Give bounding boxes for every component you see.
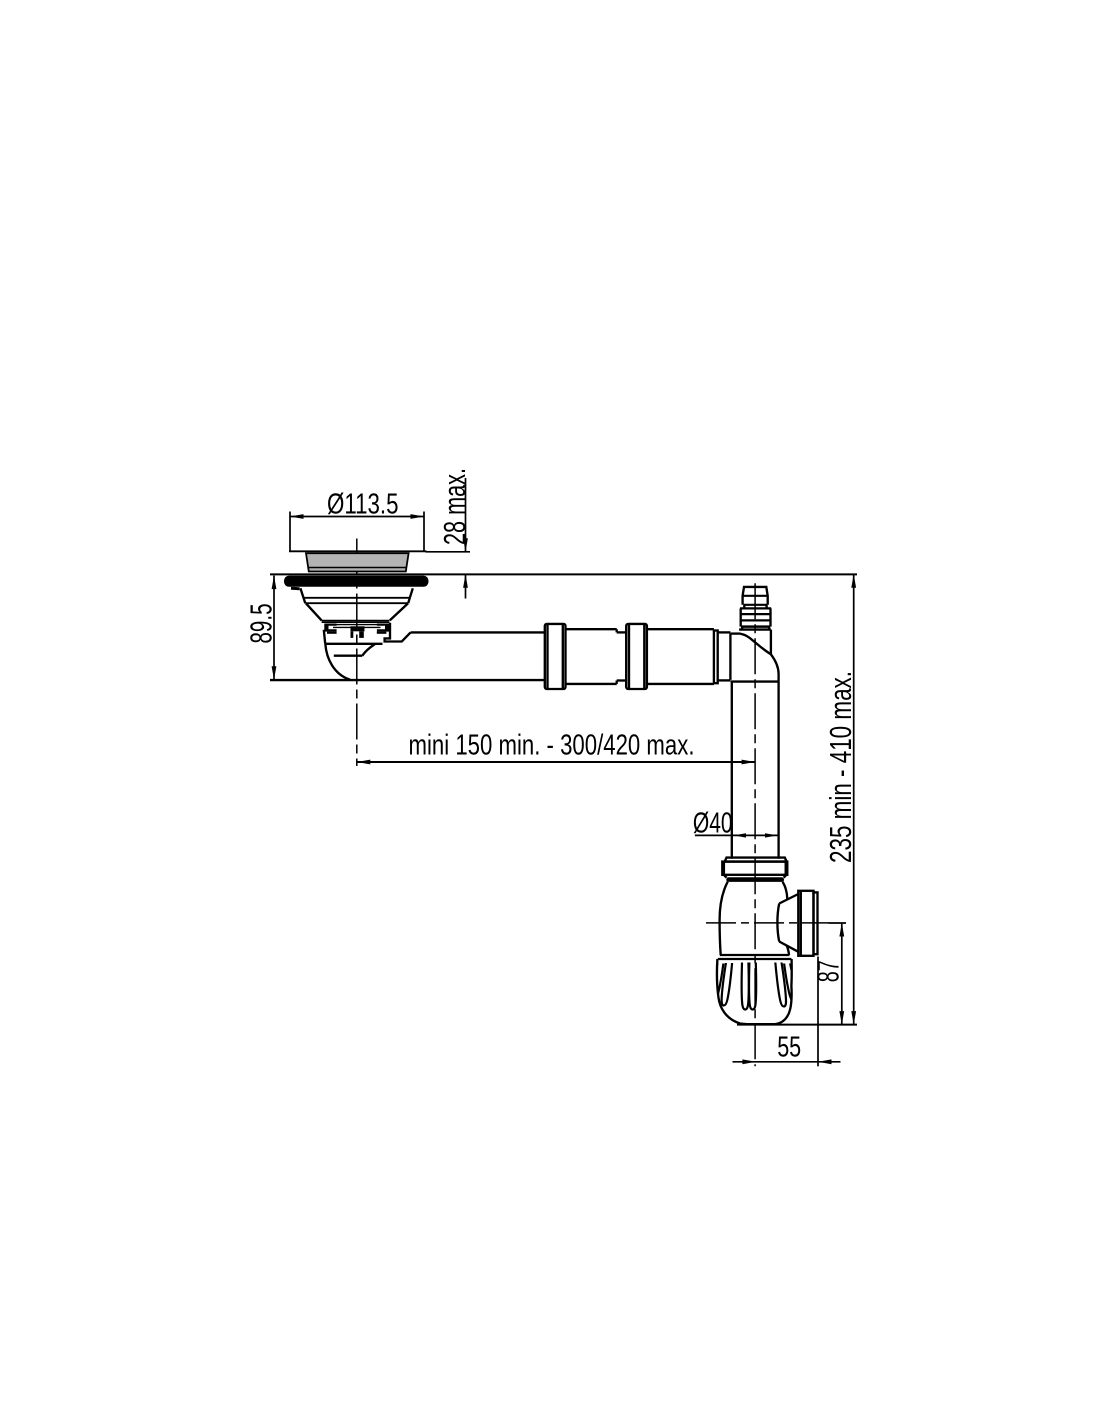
svg-text:55: 55 <box>777 1032 801 1064</box>
svg-text:89.5: 89.5 <box>244 604 279 644</box>
svg-text:235 min - 410 max.: 235 min - 410 max. <box>823 671 858 863</box>
svg-text:87: 87 <box>810 960 845 982</box>
svg-text:28 max.: 28 max. <box>438 468 472 545</box>
svg-text:Ø113.5: Ø113.5 <box>327 489 399 521</box>
svg-text:mini 150 min. - 300/420 max.: mini 150 min. - 300/420 max. <box>409 730 695 762</box>
svg-text:Ø40: Ø40 <box>693 807 733 839</box>
